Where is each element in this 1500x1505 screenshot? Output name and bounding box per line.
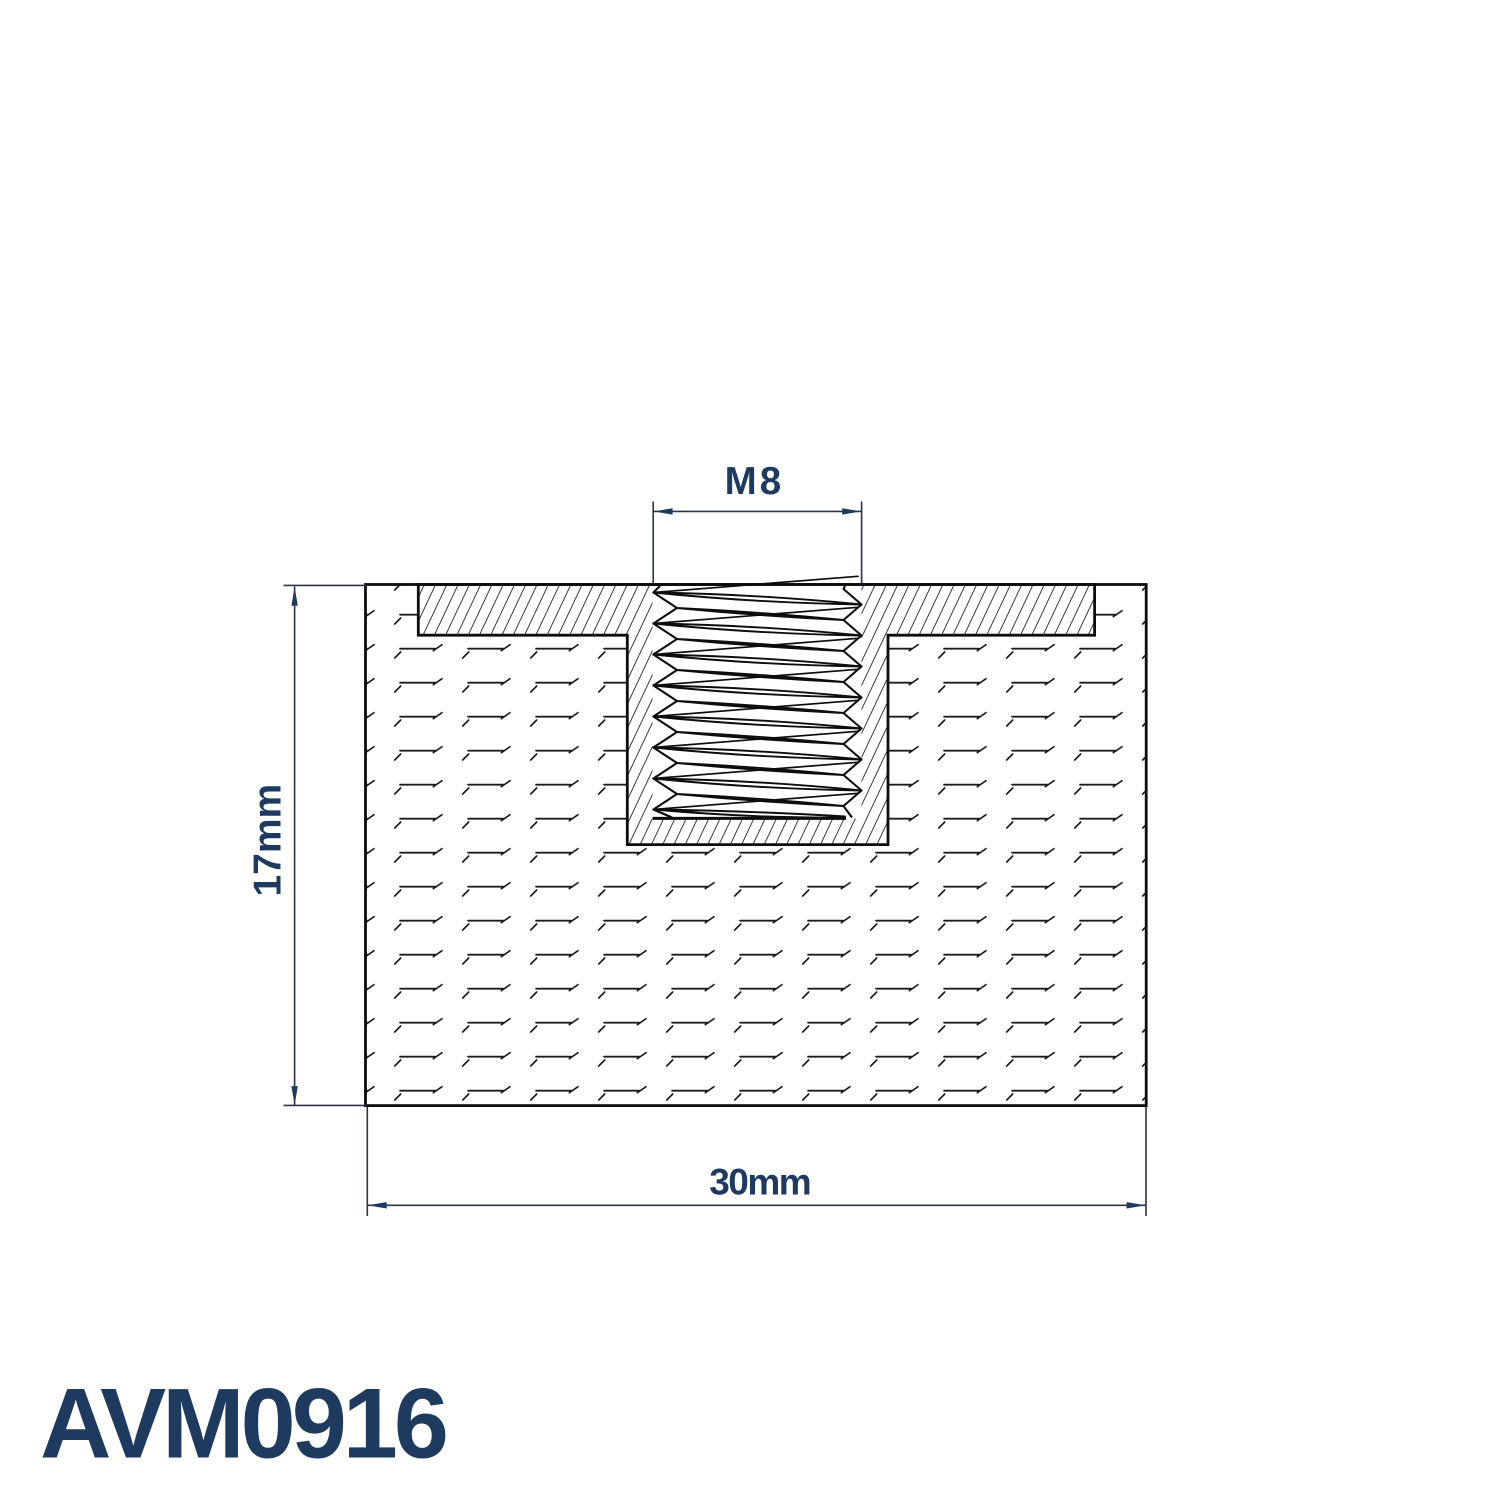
svg-text:AVM0916: AVM0916	[40, 1367, 446, 1478]
svg-text:17mm: 17mm	[247, 784, 290, 897]
svg-text:M8: M8	[725, 460, 784, 503]
svg-text:30mm: 30mm	[709, 1162, 810, 1203]
